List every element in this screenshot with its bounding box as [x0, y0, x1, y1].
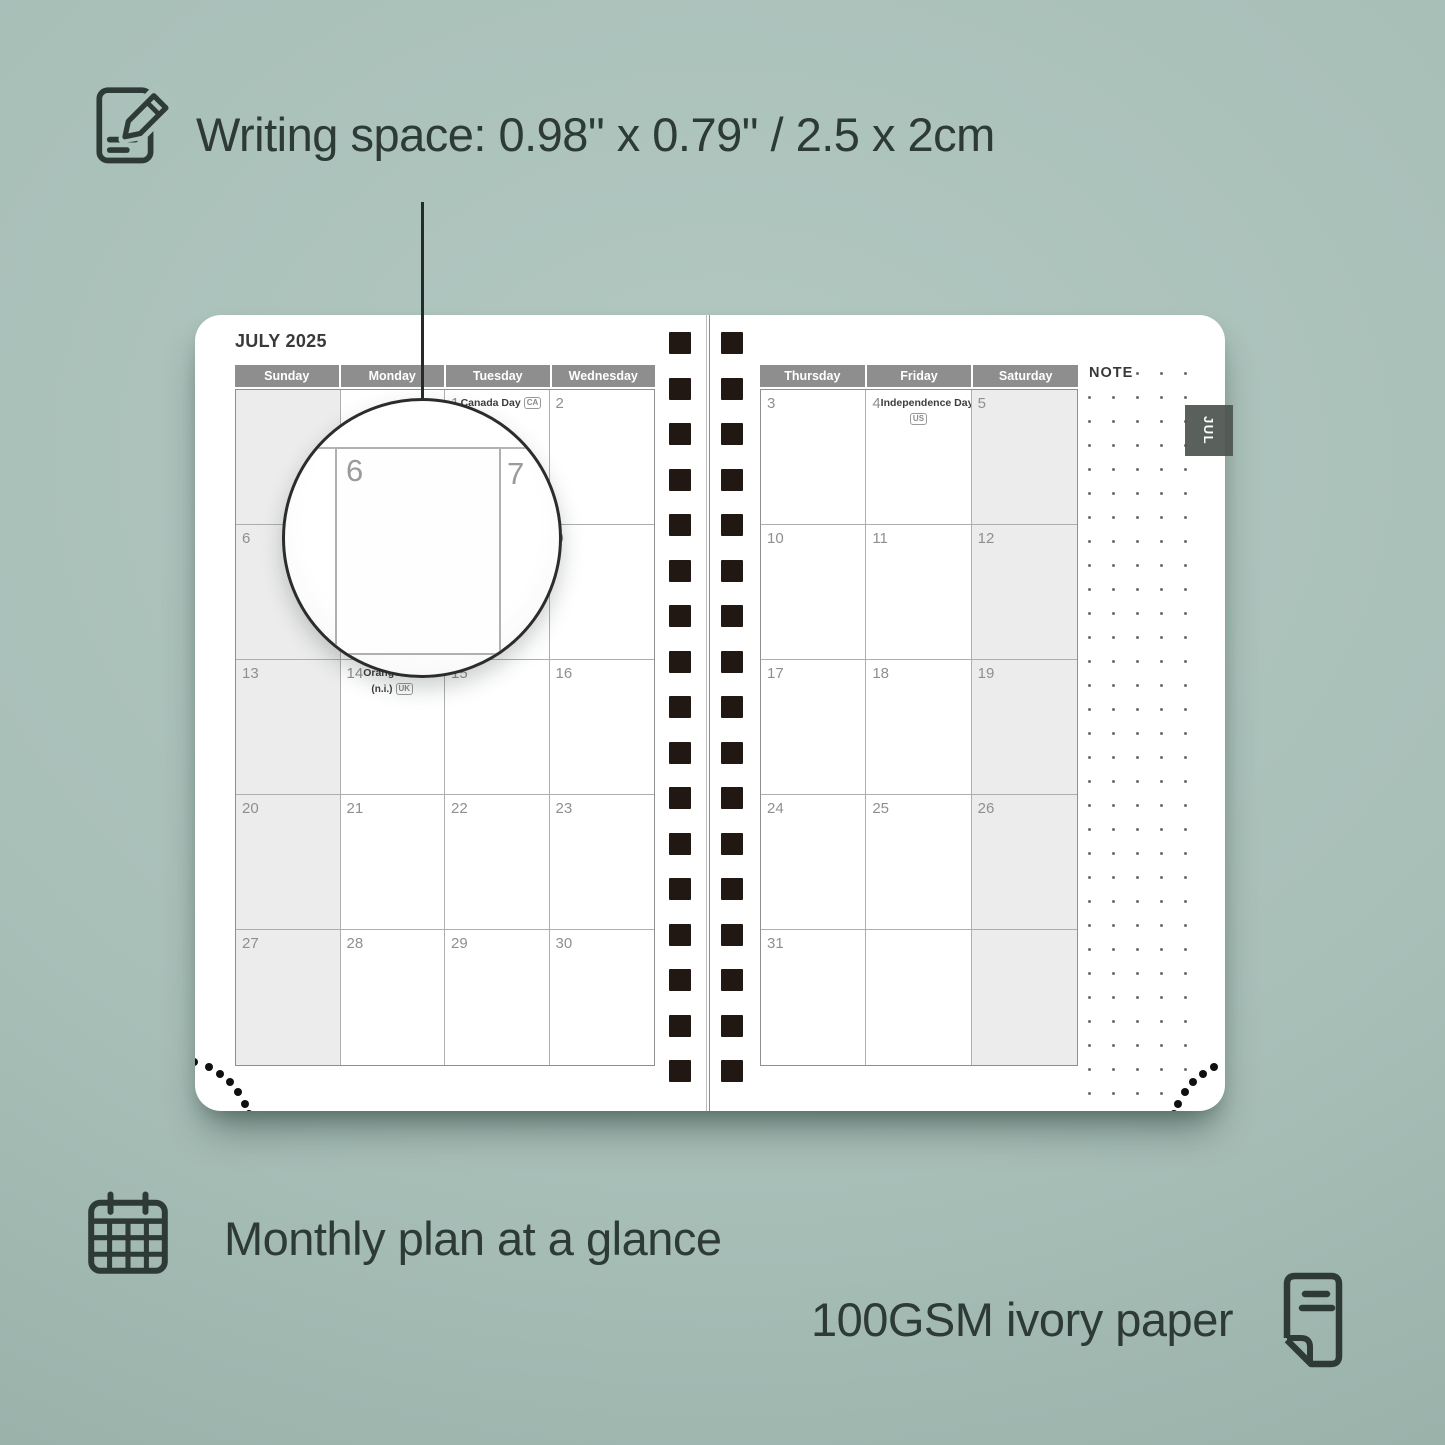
note-dot [1184, 924, 1187, 927]
note-dot [1088, 996, 1091, 999]
note-dot [1160, 1068, 1163, 1071]
calendar-cell: 17 [761, 660, 866, 795]
holiday: Independence Day [881, 397, 972, 409]
day-header: Monday [341, 365, 445, 387]
note-dot [1088, 564, 1091, 567]
note-dot [1136, 1044, 1139, 1047]
calendar-cell: 24 [761, 795, 866, 930]
day-number: 21 [347, 800, 364, 817]
note-dot [1136, 1068, 1139, 1071]
cell-content: 18 [872, 665, 964, 682]
holiday-sub-row: (n.i.)UK [347, 683, 439, 695]
calendar-cell: 31 [761, 930, 866, 1065]
note-dot [1136, 420, 1139, 423]
binding-hole [721, 378, 743, 400]
note-dot [1088, 660, 1091, 663]
note-dot [1184, 708, 1187, 711]
writing-space-text: Writing space: 0.98" x 0.79" / 2.5 x 2cm [196, 108, 995, 162]
note-dot [1112, 588, 1115, 591]
calendar-cell: 13 [236, 660, 341, 795]
cell-content: 29 [451, 935, 543, 952]
holiday-sub: (n.i.) [371, 684, 392, 695]
note-dot [1112, 1044, 1115, 1047]
note-dot [1160, 780, 1163, 783]
binding-hole [669, 696, 691, 718]
binding-hole [721, 560, 743, 582]
cell-content: 11 [872, 530, 964, 547]
note-dot [1088, 684, 1091, 687]
day-number: 19 [978, 665, 995, 682]
note-dot [1160, 420, 1163, 423]
calendar-cell: 5 [972, 390, 1077, 525]
calendar-cell [972, 930, 1077, 1065]
note-dot [1088, 1068, 1091, 1071]
note-dot [1136, 1092, 1139, 1095]
note-dot [1136, 996, 1139, 999]
note-dot [1136, 876, 1139, 879]
note-dot [1136, 732, 1139, 735]
perforation-dot [241, 1100, 249, 1108]
note-dot [1136, 684, 1139, 687]
day-header: Tuesday [446, 365, 550, 387]
note-dot [1136, 972, 1139, 975]
binding-hole [721, 423, 743, 445]
calendar-cell: 29 [445, 930, 550, 1065]
note-dot [1112, 684, 1115, 687]
note-dot [1160, 660, 1163, 663]
binding-hole [669, 833, 691, 855]
day-header: Friday [867, 365, 972, 387]
binding-hole [669, 651, 691, 673]
note-dot [1136, 468, 1139, 471]
cell-content: 24 [767, 800, 859, 817]
month-tab-jul: JUL [1185, 405, 1233, 456]
note-dot [1160, 372, 1163, 375]
cell-content: 2 [556, 395, 649, 412]
day-number: 17 [767, 665, 784, 682]
binding-hole [721, 514, 743, 536]
perforation-dot [1174, 1100, 1182, 1108]
day-number: 12 [978, 530, 995, 547]
note-dot [1136, 900, 1139, 903]
holiday-sub-row: US [872, 413, 964, 425]
binding-hole [721, 787, 743, 809]
note-dot [1112, 1020, 1115, 1023]
calendar-cell: 3 [761, 390, 866, 525]
binding-hole [669, 742, 691, 764]
month-title: JULY 2025 [235, 331, 327, 352]
calendar-right-page: ThursdayFridaySaturday34Independence Day… [760, 365, 1078, 1066]
note-dot [1184, 516, 1187, 519]
note-dot [1088, 492, 1091, 495]
binding-hole [669, 469, 691, 491]
note-dot [1184, 972, 1187, 975]
day-number: 13 [242, 665, 259, 682]
binding-hole [721, 651, 743, 673]
day-header: Sunday [235, 365, 339, 387]
note-dot [1112, 780, 1115, 783]
perforation-dot [234, 1088, 242, 1096]
note-dot [1088, 420, 1091, 423]
note-dot [1112, 948, 1115, 951]
note-dot [1184, 852, 1187, 855]
note-dot [1136, 708, 1139, 711]
note-dot [1088, 828, 1091, 831]
note-dot [1136, 780, 1139, 783]
calendar-cell: 20 [236, 795, 341, 930]
magnifier-circle: 6 7 [282, 398, 562, 678]
day-number: 24 [767, 800, 784, 817]
note-dot [1112, 636, 1115, 639]
day-number: 30 [556, 935, 573, 952]
cell-content: 27 [242, 935, 334, 952]
cell-content: 28 [347, 935, 439, 952]
note-dot [1112, 996, 1115, 999]
calendar-cell: 16 [550, 660, 655, 795]
cell-content: 30 [556, 935, 649, 952]
calendar-grid-icon [82, 1188, 174, 1280]
note-dot [1160, 612, 1163, 615]
day-number: 27 [242, 935, 259, 952]
cell-content: 19 [978, 665, 1071, 682]
note-dot [1160, 468, 1163, 471]
note-dot [1088, 396, 1091, 399]
note-dot [1160, 684, 1163, 687]
note-dot [1088, 540, 1091, 543]
note-dot [1184, 492, 1187, 495]
note-dot [1088, 1020, 1091, 1023]
calendar-cell: 21 [341, 795, 446, 930]
note-dot [1136, 1020, 1139, 1023]
note-dot [1112, 924, 1115, 927]
note-dot [1136, 660, 1139, 663]
day-number: 31 [767, 935, 784, 952]
note-dot [1160, 876, 1163, 879]
perforation-dot [226, 1078, 234, 1086]
day-number: 18 [872, 665, 889, 682]
note-dot [1088, 636, 1091, 639]
note-dot [1112, 756, 1115, 759]
calendar-cell: 11 [866, 525, 971, 660]
day-number: 22 [451, 800, 468, 817]
planner-product-image: Writing space: 0.98" x 0.79" / 2.5 x 2cm… [0, 0, 1445, 1445]
binding-hole [721, 833, 743, 855]
note-dot [1160, 564, 1163, 567]
perforation-dot [1181, 1088, 1189, 1096]
day-number: 11 [872, 530, 888, 547]
day-number: 23 [556, 800, 573, 817]
cell-content: 22 [451, 800, 543, 817]
note-dot [1088, 756, 1091, 759]
note-dot [1112, 420, 1115, 423]
calendar-cell: 23 [550, 795, 655, 930]
perforation-dot [1189, 1078, 1197, 1086]
day-header: Thursday [760, 365, 865, 387]
note-dot [1184, 804, 1187, 807]
note-dot [1112, 708, 1115, 711]
note-dot [1088, 1092, 1091, 1095]
note-dot [1112, 660, 1115, 663]
cell-content: 12 [978, 530, 1071, 547]
binding-hole [669, 1015, 691, 1037]
note-dot [1112, 516, 1115, 519]
note-dot [1184, 1020, 1187, 1023]
note-label: NOTE [1089, 365, 1133, 381]
note-dot [1160, 924, 1163, 927]
note-dot [1160, 444, 1163, 447]
day-number: 6 [242, 530, 250, 547]
note-dot [1184, 756, 1187, 759]
day-header-row: SundayMondayTuesdayWednesday [235, 365, 655, 387]
perforation-dot [1210, 1063, 1218, 1071]
note-dot [1112, 1092, 1115, 1095]
note-dot [1184, 468, 1187, 471]
binding-hole [669, 332, 691, 354]
pencil-note-icon [86, 75, 181, 170]
perforation-dot [205, 1063, 213, 1071]
country-badge: UK [396, 683, 414, 695]
calendar-cell: 2 [550, 390, 655, 525]
note-dot [1112, 972, 1115, 975]
calendar-cell: 28 [341, 930, 446, 1065]
day-header: Saturday [973, 365, 1078, 387]
calendar-cell: 10 [761, 525, 866, 660]
binding-hole [669, 378, 691, 400]
note-dot [1088, 876, 1091, 879]
note-dot [1160, 1044, 1163, 1047]
calendar-cell: 19 [972, 660, 1077, 795]
day-number: 20 [242, 800, 259, 817]
binding-hole [721, 969, 743, 991]
calendar-cell: 4Independence DayUS [866, 390, 971, 525]
note-dot [1136, 564, 1139, 567]
note-dot [1184, 1068, 1187, 1071]
note-dot [1112, 396, 1115, 399]
cell-content: 26 [978, 800, 1071, 817]
note-dot [1184, 372, 1187, 375]
cell-content: 23 [556, 800, 649, 817]
note-dot [1160, 540, 1163, 543]
note-dot [1088, 852, 1091, 855]
binding-hole [669, 560, 691, 582]
note-dot [1136, 516, 1139, 519]
note-dot [1184, 732, 1187, 735]
day-number: 4 [872, 395, 880, 412]
note-dot [1112, 804, 1115, 807]
cell-content: 9 [556, 530, 649, 547]
note-dot [1136, 588, 1139, 591]
note-dot [1136, 852, 1139, 855]
calendar-cell: 22 [445, 795, 550, 930]
binding-hole [721, 332, 743, 354]
note-dot [1088, 972, 1091, 975]
country-badge: CA [524, 397, 542, 409]
note-dot [1184, 396, 1187, 399]
day-number: 10 [767, 530, 784, 547]
note-dot [1088, 732, 1091, 735]
note-dot [1184, 828, 1187, 831]
note-dot [1112, 876, 1115, 879]
note-dot [1112, 468, 1115, 471]
note-dot [1136, 828, 1139, 831]
calendar-cell [866, 930, 971, 1065]
note-dot [1112, 492, 1115, 495]
binding-hole [721, 742, 743, 764]
note-dot [1184, 1044, 1187, 1047]
note-dot [1088, 708, 1091, 711]
binding-hole [669, 924, 691, 946]
note-dot [1160, 756, 1163, 759]
note-dot [1136, 804, 1139, 807]
note-dot [1160, 1092, 1163, 1095]
note-dot [1112, 732, 1115, 735]
calendar-cell: 12 [972, 525, 1077, 660]
perforation-dot [245, 1110, 253, 1111]
cell-content: 25 [872, 800, 964, 817]
binding-hole [669, 423, 691, 445]
note-dot [1136, 612, 1139, 615]
day-number: 3 [767, 395, 775, 412]
callout-line [421, 202, 424, 400]
binding-hole [669, 514, 691, 536]
binding-hole [721, 696, 743, 718]
note-dot [1184, 612, 1187, 615]
calendar-cell: 25 [866, 795, 971, 930]
perforation-dot [195, 1058, 198, 1066]
calendar-cell: 18 [866, 660, 971, 795]
note-dot [1136, 924, 1139, 927]
calendar-cell: 27 [236, 930, 341, 1065]
note-dot [1112, 540, 1115, 543]
note-dot [1088, 900, 1091, 903]
note-dot [1184, 540, 1187, 543]
day-number: 25 [872, 800, 889, 817]
note-dot [1088, 948, 1091, 951]
day-number: 29 [451, 935, 468, 952]
note-dot [1160, 636, 1163, 639]
calendar-cell: 9 [550, 525, 655, 660]
note-dot [1184, 780, 1187, 783]
note-dot [1088, 444, 1091, 447]
note-dot [1088, 468, 1091, 471]
day-number: 5 [978, 395, 986, 412]
perforation-dot [216, 1070, 224, 1078]
page-seam-line [706, 315, 707, 1111]
binding-hole [721, 469, 743, 491]
note-dot [1136, 540, 1139, 543]
binding-hole [721, 878, 743, 900]
note-dot [1112, 564, 1115, 567]
cell-content: 31 [767, 935, 859, 952]
cell-content: 5 [978, 395, 1071, 412]
note-dot [1184, 588, 1187, 591]
note-dot [1160, 732, 1163, 735]
cell-content: 16 [556, 665, 649, 682]
page-seam-line [709, 315, 710, 1111]
note-dot [1088, 924, 1091, 927]
note-dot [1184, 876, 1187, 879]
cell-content: 10 [767, 530, 859, 547]
note-dot [1136, 444, 1139, 447]
note-dot [1136, 636, 1139, 639]
note-dot [1184, 636, 1187, 639]
note-dot [1160, 900, 1163, 903]
binding-hole [721, 1060, 743, 1082]
note-dot [1136, 396, 1139, 399]
note-dot [1088, 804, 1091, 807]
note-dot [1112, 828, 1115, 831]
perforation-dot [1199, 1070, 1207, 1078]
calendar-cell: 30 [550, 930, 655, 1065]
perforation-dot [1170, 1110, 1178, 1111]
binding-hole [669, 787, 691, 809]
note-dot [1184, 996, 1187, 999]
note-dot [1088, 516, 1091, 519]
note-dot [1160, 852, 1163, 855]
note-dot [1136, 372, 1139, 375]
note-dot [1160, 708, 1163, 711]
note-dot [1160, 996, 1163, 999]
note-dot [1160, 804, 1163, 807]
cell-content: 3 [767, 395, 859, 412]
country-badge: US [910, 413, 927, 425]
binding-hole [669, 605, 691, 627]
binding-hole [721, 605, 743, 627]
calendar-grid: 34Independence DayUS51011121718192425263… [760, 389, 1078, 1066]
day-number: 14 [347, 665, 364, 682]
binding-hole [669, 1060, 691, 1082]
note-dot [1088, 1044, 1091, 1047]
paper-icon [1273, 1266, 1353, 1374]
cell-content: 20 [242, 800, 334, 817]
cell-content: 13 [242, 665, 334, 682]
calendar-cell: 26 [972, 795, 1077, 930]
note-dot [1112, 852, 1115, 855]
note-dot [1160, 972, 1163, 975]
note-dot [1160, 948, 1163, 951]
cell-content: 21 [347, 800, 439, 817]
day-number: 2 [556, 395, 564, 412]
magnified-day-number: 7 [507, 456, 524, 492]
note-dot [1160, 492, 1163, 495]
day-header-row: ThursdayFridaySaturday [760, 365, 1078, 387]
note-dot [1160, 588, 1163, 591]
note-dot [1112, 612, 1115, 615]
binding-hole [721, 924, 743, 946]
note-dot [1136, 756, 1139, 759]
month-tab-label: JUL [1202, 416, 1217, 445]
day-number: 16 [556, 665, 573, 682]
paper-text: 100GSM ivory paper [811, 1293, 1233, 1347]
note-dot [1088, 612, 1091, 615]
note-dot [1160, 516, 1163, 519]
day-number: 26 [978, 800, 995, 817]
note-dot [1160, 396, 1163, 399]
note-dot [1184, 684, 1187, 687]
note-dot [1160, 1020, 1163, 1023]
note-dot [1112, 900, 1115, 903]
note-dot [1088, 588, 1091, 591]
note-dot [1112, 1068, 1115, 1071]
note-dot [1184, 900, 1187, 903]
note-dot [1112, 444, 1115, 447]
note-dot [1088, 780, 1091, 783]
note-dot [1136, 948, 1139, 951]
calendar-cell: 14Orangemen's Day(n.i.)UK [341, 660, 446, 795]
calendar-cell: 15 [445, 660, 550, 795]
binding-hole [669, 969, 691, 991]
binding-hole [669, 878, 691, 900]
